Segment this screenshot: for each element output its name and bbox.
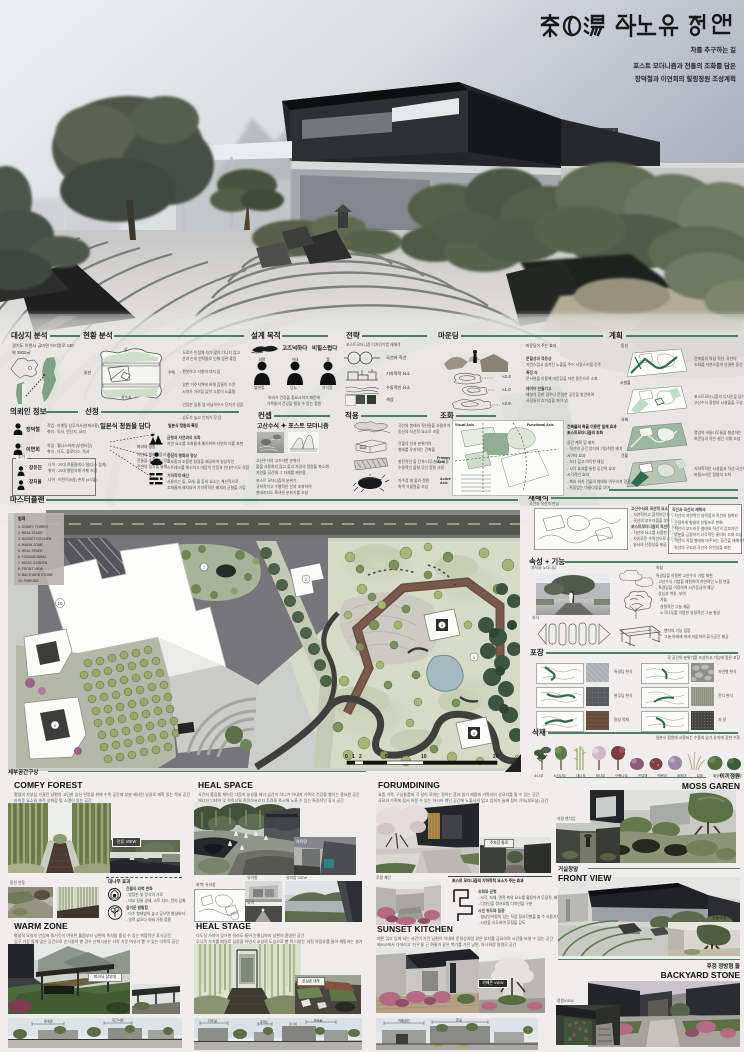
svg-text:다도실: 다도실 [208,1018,217,1023]
svg-text:온실: 온실 [456,1018,462,1022]
svg-text:온실동: 온실동 [314,1018,323,1023]
svg-text:5. HEAL SPACE: 5. HEAL SPACE [18,549,43,553]
svg-text:0: 0 [345,754,348,760]
svg-text:9. BACKYARD STONE: 9. BACKYARD STONE [18,573,53,577]
svg-text:카페공간: 카페공간 [398,1018,410,1023]
svg-text:2: 2 [359,754,362,760]
svg-text:2. HEAL STAGE: 2. HEAL STAGE [18,531,43,535]
svg-text:4. WARM ZONE: 4. WARM ZONE [18,543,43,547]
svg-text:6. FORUMDINING: 6. FORUMDINING [18,555,46,559]
svg-text:7. MOSS GARDEN: 7. MOSS GARDEN [18,561,48,565]
svg-text:10: 10 [421,754,427,760]
svg-text:남편: 남편 [259,357,266,361]
svg-text:휴게존: 휴게존 [44,1019,53,1024]
svg-text:피크닉존: 피크닉존 [112,1018,124,1023]
svg-text:범례: 범례 [18,515,26,521]
svg-text:8: 8 [441,624,443,628]
svg-text:아내: 아내 [292,357,299,361]
svg-text:휴게소: 휴게소 [260,1019,269,1024]
svg-text:8. FRONT VIEW: 8. FRONT VIEW [18,567,44,571]
svg-text:9: 9 [473,732,475,736]
svg-text:5: 5 [385,754,388,760]
svg-text:20: 20 [493,754,499,760]
svg-text:10: 10 [58,601,63,606]
svg-text:10. PARKING: 10. PARKING [18,579,39,583]
svg-text:1. COMFY FOREST: 1. COMFY FOREST [18,525,49,529]
svg-text:1: 1 [352,754,355,760]
svg-text:딸: 딸 [326,357,330,361]
svg-text:3. SUNSET KITCHEN: 3. SUNSET KITCHEN [18,537,52,541]
